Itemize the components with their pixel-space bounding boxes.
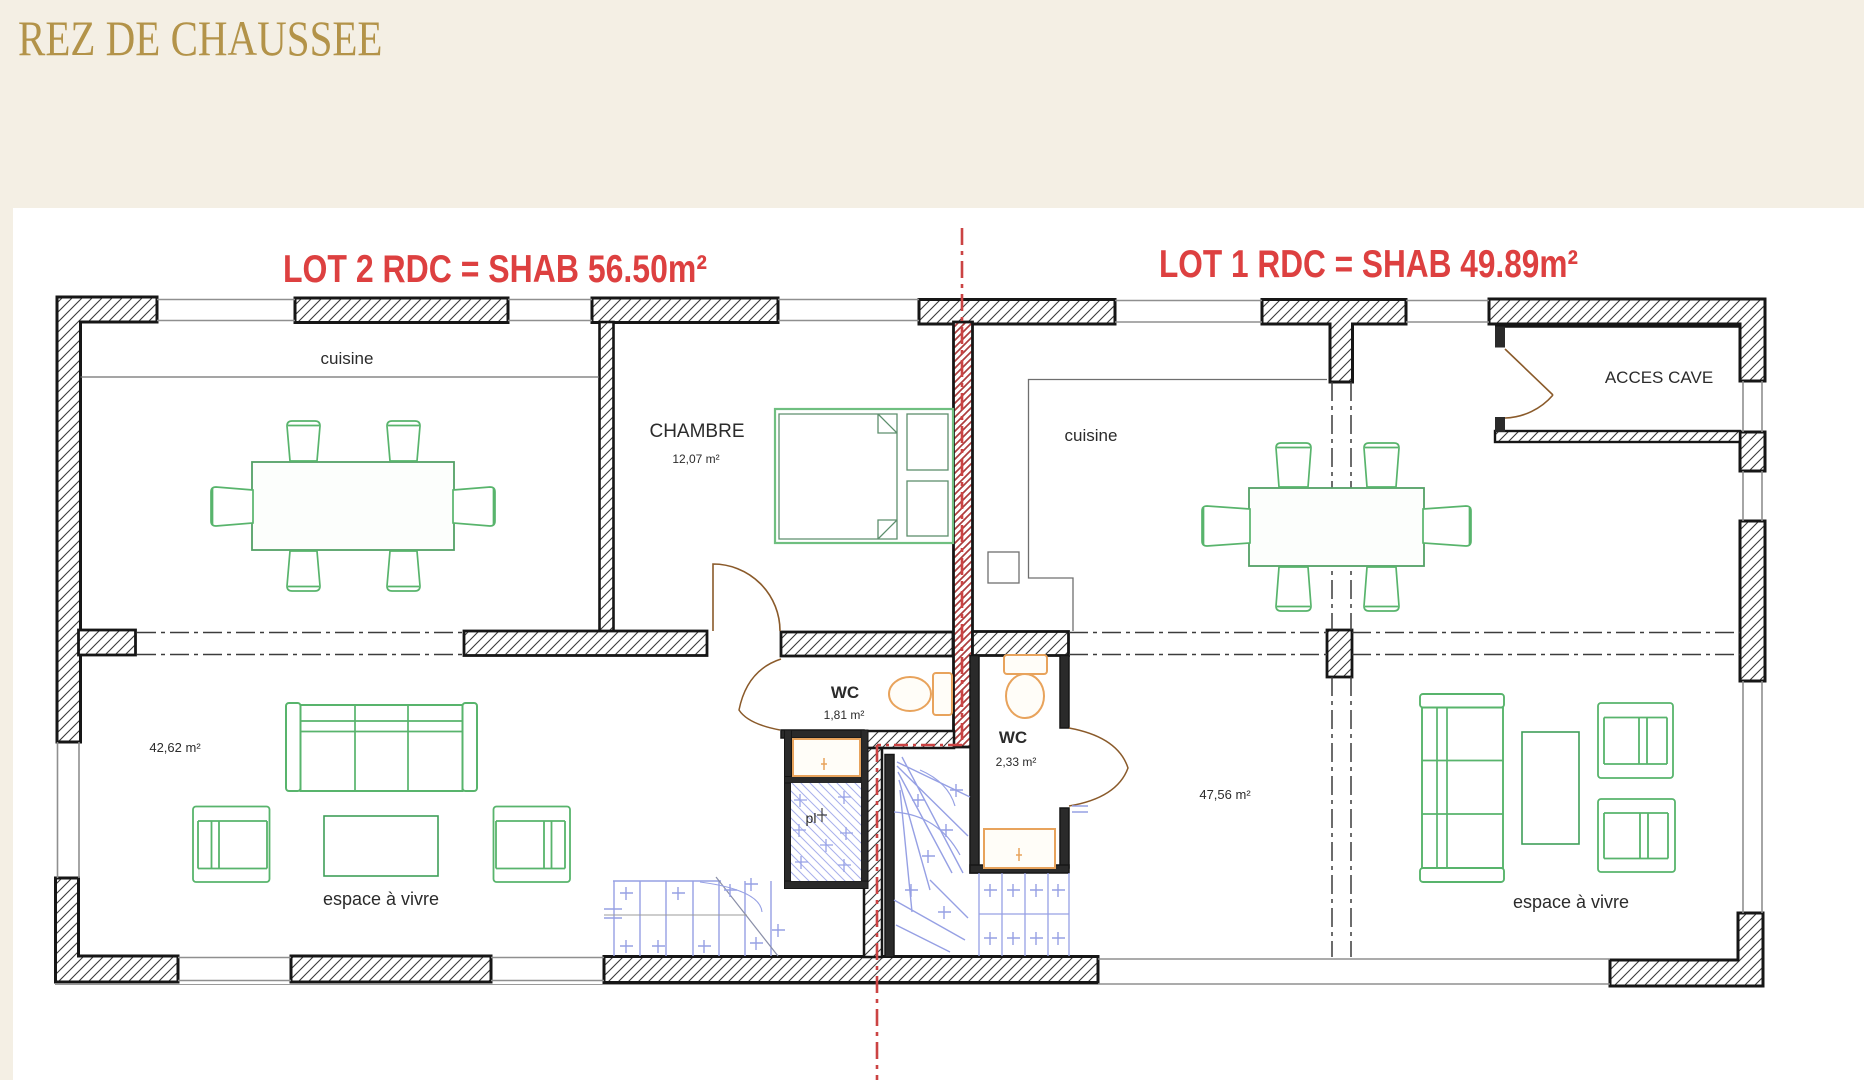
svg-text:espace à vivre: espace à vivre: [1513, 892, 1629, 912]
svg-text:WC: WC: [999, 728, 1027, 747]
svg-text:cuisine: cuisine: [321, 349, 374, 368]
svg-text:pl: pl: [806, 810, 817, 826]
svg-text:LOT 1 RDC = SHAB 49.89m²: LOT 1 RDC = SHAB 49.89m²: [1159, 243, 1578, 286]
svg-text:1,81 m²: 1,81 m²: [824, 708, 865, 722]
svg-text:2,33 m²: 2,33 m²: [996, 755, 1037, 769]
svg-text:47,56 m²: 47,56 m²: [1199, 787, 1251, 802]
svg-text:espace à vivre: espace à vivre: [323, 889, 439, 909]
svg-text:CHAMBRE: CHAMBRE: [649, 421, 744, 442]
svg-text:ACCES CAVE: ACCES CAVE: [1605, 368, 1713, 387]
svg-text:42,62 m²: 42,62 m²: [149, 740, 201, 755]
svg-text:WC: WC: [831, 683, 859, 702]
svg-text:LOT 2 RDC = SHAB 56.50m²: LOT 2 RDC = SHAB 56.50m²: [283, 248, 707, 291]
svg-text:cuisine: cuisine: [1065, 426, 1118, 445]
svg-text:12,07 m²: 12,07 m²: [672, 452, 719, 466]
